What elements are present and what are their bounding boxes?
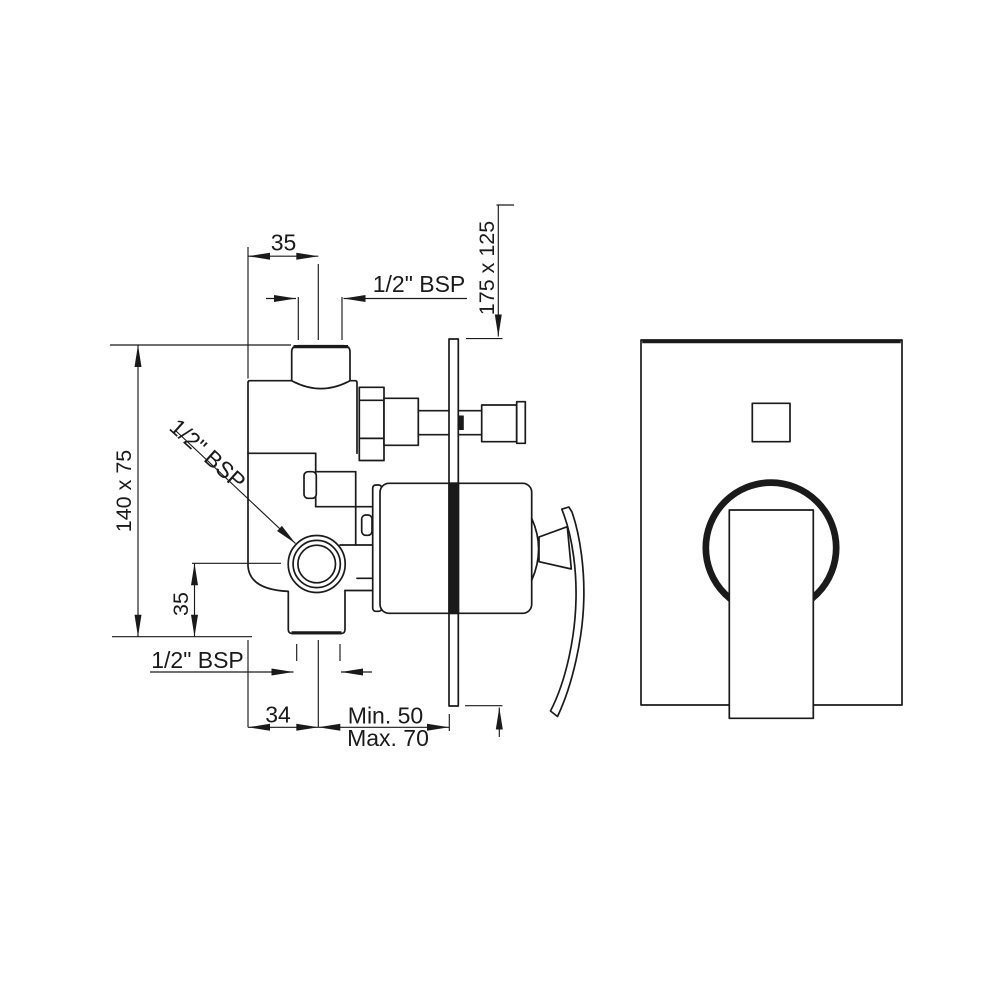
technical-drawing: 35 1/2" BSP 175 x 125 140 x 75 1/2" BSP … xyxy=(0,0,1000,1000)
label-depth-max: Max. 70 xyxy=(347,725,429,751)
diverter-button xyxy=(752,403,790,441)
mounting-tab-upper xyxy=(304,472,316,499)
handle-lever-front xyxy=(729,510,813,718)
spindle-fitting xyxy=(482,405,517,442)
label-plate-size: 175 x 125 xyxy=(475,221,499,315)
label-side-offset: 35 xyxy=(169,592,193,616)
plate-cartridge-band xyxy=(448,482,459,614)
page: 35 1/2" BSP 175 x 125 140 x 75 1/2" BSP … xyxy=(0,0,1000,1000)
label-body-size: 140 x 75 xyxy=(112,450,136,533)
front-view xyxy=(641,340,902,718)
spindle-seal xyxy=(458,416,464,431)
label-bottom-thread: 1/2" BSP xyxy=(151,647,244,673)
side-port-outer xyxy=(288,536,345,593)
hex-nut xyxy=(359,387,384,460)
label-bottom-offset: 34 xyxy=(265,702,291,728)
spindle-end-cap xyxy=(517,402,526,444)
mounting-tab-lower xyxy=(362,515,372,535)
label-top-width: 35 xyxy=(271,230,297,256)
label-top-thread: 1/2" BSP xyxy=(373,271,466,297)
stop-valve-stub xyxy=(384,398,418,445)
